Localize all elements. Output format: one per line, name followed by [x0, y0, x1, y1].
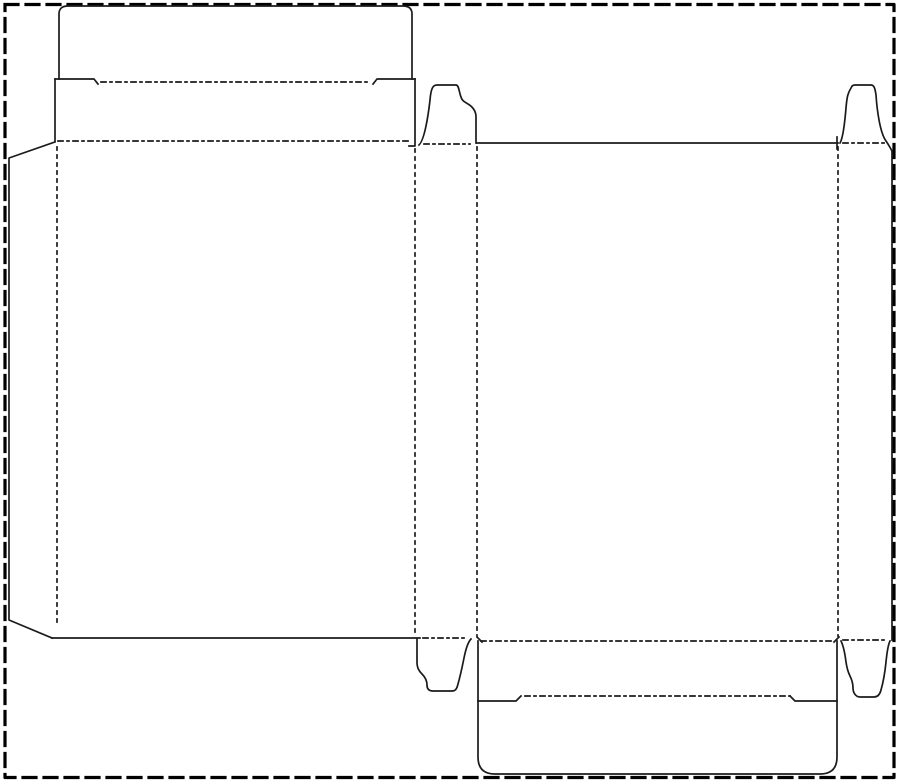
glue-flap-cut [9, 142, 55, 638]
dieline-page [0, 0, 900, 782]
dust-flap-bottom-right-cut [841, 641, 890, 697]
dust-flap-top-right-cut [840, 85, 892, 151]
page-border [5, 5, 894, 778]
tuck-flap-shoulder-right-cut [373, 79, 415, 84]
tuck-flap-top-cut [59, 6, 412, 79]
tuck-flap-shoulder-left-cut [55, 79, 98, 84]
bottom-shoulder-right-cut [790, 696, 837, 701]
dust-flap-top-left-cut [419, 85, 476, 145]
lid-panel-right-cut [409, 79, 415, 146]
bottom-shoulder-left-cut [478, 696, 521, 701]
dieline-svg [0, 0, 900, 782]
dust-flap-bottom-left-cut [417, 639, 471, 691]
bottom-panel-and-tuck-cut [478, 641, 837, 774]
